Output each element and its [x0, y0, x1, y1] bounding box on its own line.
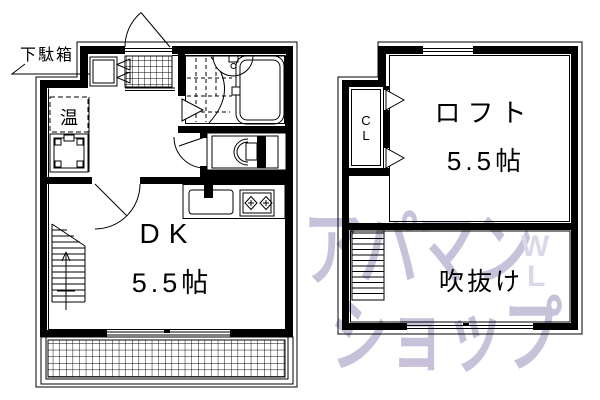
closet-door-arrow [386, 90, 404, 110]
floor-plan-2f: C L ロフト 5.5帖 吹抜け [338, 42, 582, 334]
loft-room-size: 5.5帖 [447, 146, 525, 176]
kitchen-counter [183, 184, 285, 219]
closet-label-l: L [362, 128, 369, 143]
stove [240, 190, 274, 216]
void-room-label: 吹抜け [439, 268, 523, 296]
bathroom [182, 56, 285, 124]
floor-plan-1f: 下駄箱 温 [12, 13, 297, 388]
toilet-room [174, 133, 286, 170]
washbasin [213, 56, 253, 76]
entrance-opening [125, 49, 172, 52]
bathtub [232, 56, 284, 124]
stair-direction-arrow [57, 252, 75, 310]
kitchen-sink [189, 184, 233, 214]
staircase-2f [352, 230, 384, 300]
closet: C L [349, 87, 405, 169]
dk-window [107, 330, 230, 337]
shoe-cabinet-label: 下駄箱 [20, 46, 74, 64]
balcony [41, 337, 293, 384]
floor-plan-image: 下駄箱 温 [0, 0, 600, 400]
void-window-bottom [407, 323, 533, 330]
faucet [204, 184, 213, 198]
loft-room-label: ロフト [434, 98, 533, 128]
staircase-1f [52, 224, 85, 310]
water-heater: 温 [50, 97, 88, 132]
closet-label-c: C [361, 113, 370, 128]
washing-machine-pan [50, 134, 88, 172]
dk-room-label: DK [140, 218, 197, 249]
dk-room-size: 5.5帖 [132, 268, 213, 298]
toilet [212, 136, 278, 168]
dk-door-arc [95, 184, 140, 229]
water-heater-label: 温 [60, 108, 78, 128]
entrance-tile [125, 56, 175, 91]
loft-window-top [423, 46, 473, 54]
shoe-cabinet [90, 57, 130, 86]
bath-door-arrow [182, 99, 203, 121]
toilet-door-arc [174, 137, 205, 168]
closet-door-arrow [386, 148, 404, 168]
